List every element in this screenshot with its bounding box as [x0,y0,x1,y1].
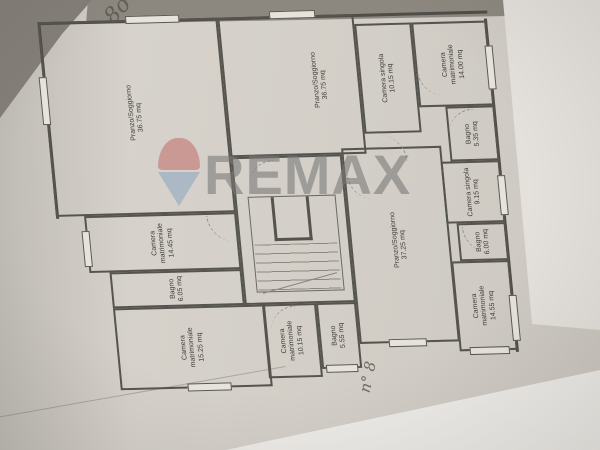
room-camera-matrimoniale-bottom-right: Camera matrimoniale 14.55 mq [451,260,518,351]
room-label: Camera matrimoniale 15.25 mq [178,318,208,377]
window-mark [389,338,428,347]
floorplan-photo: Pranzo/Soggiorno 36.75 mq Camera matrimo… [0,0,600,450]
room-camera-singola-top: Camera singola 10.15 mq [354,23,422,134]
remax-balloon-icon [158,138,200,214]
room-label: Bagno 5.55 mq [328,306,350,364]
balloon-dome [158,138,200,170]
room-camera-matrimoniale-top-right: Camera matrimoniale 14.00 mq [411,21,494,108]
room-bagno-left: Bagno 6.05 mq [109,269,244,308]
room-label: Pranzo/Soggiorno 36.75 mq [126,94,147,140]
balloon-cone [158,172,200,206]
remax-watermark: REMAX [158,136,428,222]
remax-wordmark: REMAX [204,142,411,207]
room-bagno-bottom-middle: Bagno 5.55 mq [316,302,362,369]
room-label: Pranzo/Soggiorno 36.75 mq [311,62,332,108]
window-mark [469,346,510,355]
room-label: Camera singola 10.15 mq [377,49,399,107]
room-label: Pranzo/Soggiorno 37.25 mq [390,222,411,268]
room-label: Camera matrimoniale 14.55 mq [469,276,499,335]
window-mark [187,382,232,391]
window-mark [269,10,316,19]
window-mark [125,15,180,24]
room-camera-matrimoniale-bottom-left: Camera matrimoniale 15.25 mq [113,304,273,390]
window-mark [326,364,359,373]
